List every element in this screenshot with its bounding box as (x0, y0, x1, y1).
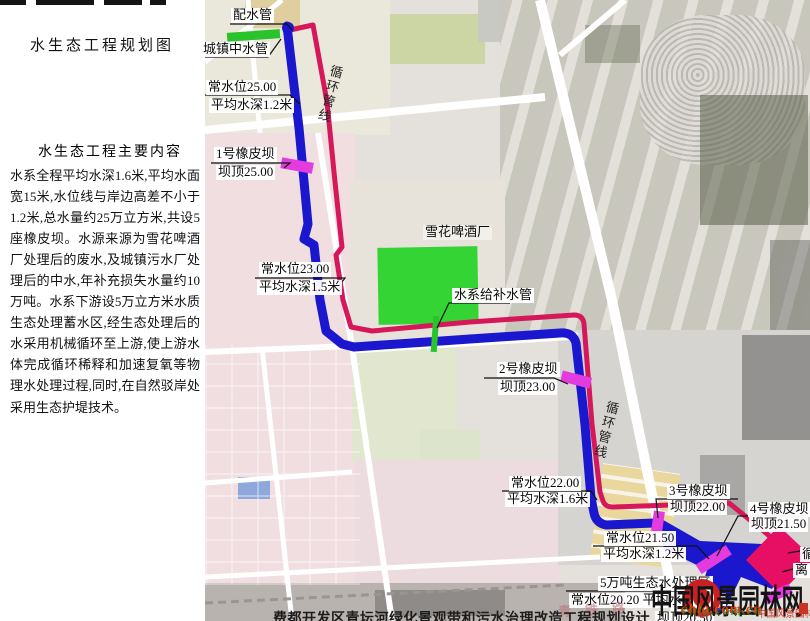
map-region (770, 240, 810, 330)
page-title: 水生态工程规划图 (30, 34, 174, 55)
map-region-grid (205, 345, 360, 585)
label-pump-cutoff-1: 循 (800, 547, 810, 562)
label-water-level-25: 常水位25.00 (206, 80, 278, 95)
label-dam3-crest: 坝顶22.00 (668, 500, 727, 515)
label-dam3: 3号橡皮坝 (667, 484, 730, 499)
planning-map-page: 水生态工程规划图 水生态工程主要内容 水系全程平均水深1.6米,平均水面宽15米… (0, 0, 810, 621)
label-distribution-pipe: 配水管 (231, 8, 274, 23)
label-dam2: 2号橡皮坝 (497, 362, 560, 377)
label-town-reclaimed-pipe: 城镇中水管 (201, 42, 270, 57)
drawing-caption: 费都开发区青坛河绿化景观带和污水治理改造工程规划设计 (273, 608, 650, 621)
satellite-map (205, 0, 810, 621)
watermark: 中国风景园林网 chla.com.cn 中国风景园林网 (645, 570, 810, 621)
label-dam1: 1号橡皮坝 (214, 147, 277, 162)
map-region (742, 335, 810, 440)
corner-mark (0, 0, 26, 5)
label-supply-pipe: 水系给补水管 (452, 288, 534, 303)
label-dam1-crest: 坝顶25.00 (216, 165, 275, 180)
project-description: 水系全程平均水深1.6米,平均水面宽15米,水位线与岸边高差不小于1.2米,总水… (10, 165, 200, 418)
label-dam4-crest: 坝顶21.50 (749, 517, 808, 532)
label-dam2-crest: 坝顶23.00 (498, 380, 557, 395)
label-water-level-23: 常水位23.00 (259, 262, 331, 277)
watermark-seal-icon (799, 603, 808, 614)
corner-mark (36, 0, 94, 5)
map-region (390, 14, 485, 64)
map-region (585, 25, 640, 63)
label-depth-1-2: 平均水深1.2米 (209, 98, 294, 113)
corner-mark (104, 0, 142, 5)
map-region (700, 95, 808, 225)
watermark-url: chla.com.cn (681, 602, 762, 618)
label-depth-1-5: 平均水深1.5米 (257, 280, 342, 295)
section-title: 水生态工程主要内容 (38, 141, 182, 161)
label-depth-1-6: 平均水深1.6米 (505, 492, 590, 507)
label-dam4: 4号橡皮坝 (748, 502, 810, 517)
label-water-level-21-5: 常水位21.50 (604, 531, 676, 546)
label-snow-beer-factory: 雪花啤酒厂 (423, 225, 492, 240)
corner-mark (150, 0, 166, 5)
label-water-level-22: 常水位22.00 (509, 476, 581, 491)
factory-area (377, 246, 478, 325)
label-depth-1-2b: 平均水深1.2米 (601, 547, 686, 562)
left-text-panel: 水生态工程规划图 水生态工程主要内容 水系全程平均水深1.6米,平均水面宽15米… (0, 0, 205, 621)
